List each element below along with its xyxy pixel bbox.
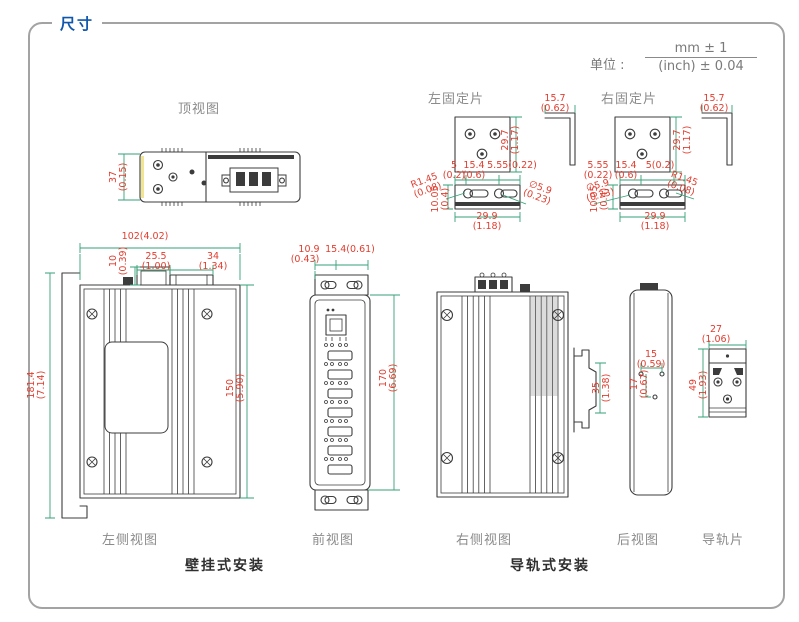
unit-mm: mm ± 1 <box>645 41 757 58</box>
dim-ls-181-4: 181.4(7.14) <box>27 371 48 400</box>
dim-dr-49: 49(1.93) <box>689 371 710 400</box>
dim-lp-29-9: 29.9(1.18) <box>473 212 502 233</box>
dim-lp-5-55: 5.55(0.22) <box>487 161 537 171</box>
dimension-drawing-page: 尺寸 单位 : mm ± 1 (inch) ± 0.04 顶视图 左固定片 右固… <box>0 0 799 622</box>
dim-top-view-height: 37(0.15) <box>109 163 130 192</box>
dim-rp-5: 5(0.2) <box>646 161 675 171</box>
dim-ls-150: 150(5.90) <box>226 374 247 403</box>
unit-label: 单位 : <box>590 54 625 73</box>
dim-right-plate-height: 29.7(1.17) <box>673 126 694 155</box>
dim-ls-10: 10(0.39) <box>109 247 130 276</box>
caption-din-mount: 导轨式安装 <box>510 555 590 575</box>
dim-left-plate-side-width: 15.7(0.62) <box>541 94 570 115</box>
dim-rv-15: 15(0.59) <box>637 350 666 371</box>
caption-wall-mount: 壁挂式安装 <box>185 555 265 575</box>
dim-rp-15-4: 15.4(0.6) <box>615 161 638 182</box>
dim-lp-15-4: 15.4(0.6) <box>463 161 486 182</box>
dim-lp-10-05: 10.05(0.4) <box>431 185 452 212</box>
dim-ls-25-5: 25.5(1.00) <box>142 252 171 273</box>
unit-fraction: mm ± 1 (inch) ± 0.04 <box>645 41 757 74</box>
dim-fv-170: 170(6.69) <box>379 364 400 393</box>
dim-left-plate-height: 29.7(1.17) <box>501 126 522 155</box>
dim-rv-17: 17(0.67) <box>630 370 651 399</box>
dim-ls-34: 34(1.34) <box>199 252 228 273</box>
unit-inch: (inch) ± 0.04 <box>645 58 757 74</box>
caption-top-view: 顶视图 <box>178 98 220 117</box>
dim-fv-0-43: (0.43) <box>291 255 320 265</box>
dim-rp-10-05: 10.05(0.4) <box>590 185 611 212</box>
page-title: 尺寸 <box>52 13 102 34</box>
dim-rs-35: 35(1.38) <box>592 374 613 403</box>
caption-rail-plate: 导轨片 <box>702 529 744 548</box>
right-side-view-drawing <box>428 266 618 511</box>
caption-front-view: 前视图 <box>312 529 354 548</box>
caption-rear-view: 后视图 <box>617 529 659 548</box>
dim-dr-27: 27(1.06) <box>702 325 731 346</box>
dim-right-plate-side-width: 15.7(0.62) <box>700 94 729 115</box>
dim-ls-102: 102(4.02) <box>122 232 169 242</box>
caption-left-side-view: 左侧视图 <box>102 529 158 548</box>
caption-right-side-view: 右侧视图 <box>456 529 512 548</box>
dim-rp-29-9: 29.9(1.18) <box>641 212 670 233</box>
top-view-drawing <box>110 138 315 213</box>
dim-fv-15-4: 15.4(0.61) <box>325 245 375 255</box>
